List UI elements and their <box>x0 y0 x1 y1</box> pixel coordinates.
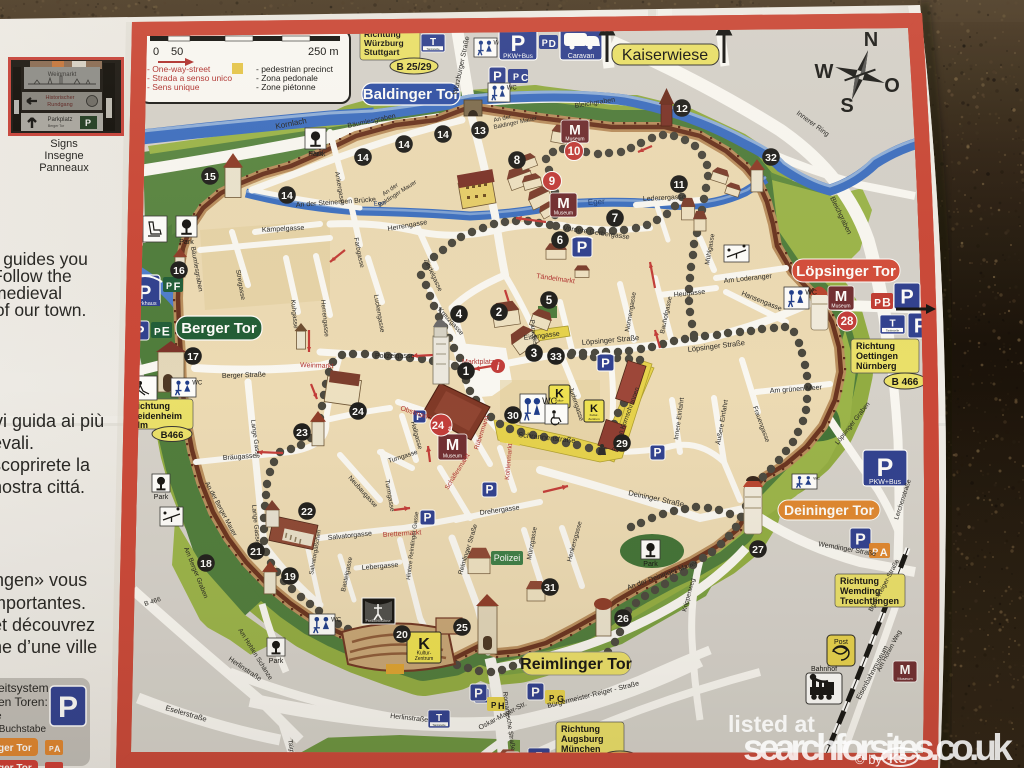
svg-text:© by: © by <box>855 752 882 767</box>
svg-text:KS: KS <box>889 751 907 766</box>
